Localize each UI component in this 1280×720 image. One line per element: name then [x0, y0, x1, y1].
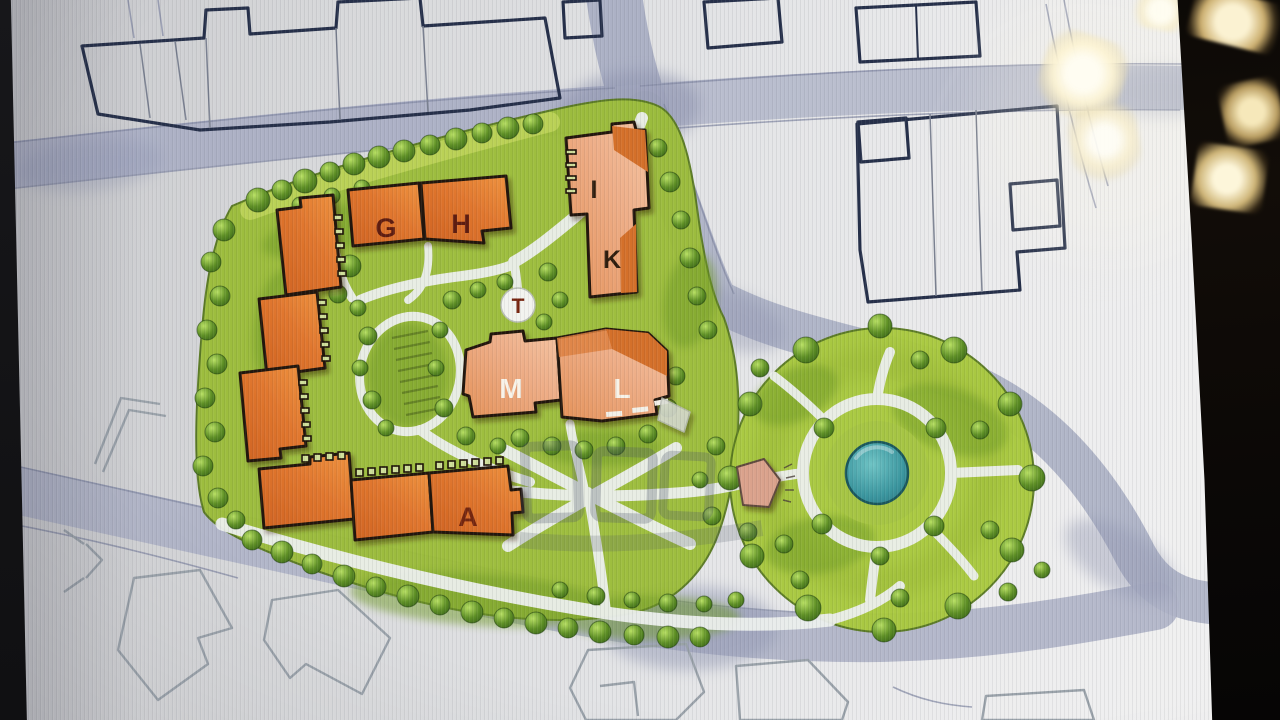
pond	[825, 421, 929, 525]
building-left-2	[259, 292, 325, 376]
site-plan-drawing: G H I K M L A T	[0, 0, 1280, 720]
utility-t-label: T	[512, 295, 525, 318]
building-a-label: A	[458, 502, 478, 532]
photo-of-screen-site-plan: G H I K M L A T	[0, 0, 1280, 720]
building-g-label: G	[375, 213, 396, 243]
building-left-1	[277, 195, 341, 295]
building-m-label: M	[499, 373, 522, 404]
building-i-label: I	[591, 176, 598, 204]
building-h-label: H	[451, 209, 471, 239]
building-l-label: L	[613, 373, 630, 404]
building-k-label: K	[603, 246, 621, 274]
building-left-3	[240, 366, 306, 461]
